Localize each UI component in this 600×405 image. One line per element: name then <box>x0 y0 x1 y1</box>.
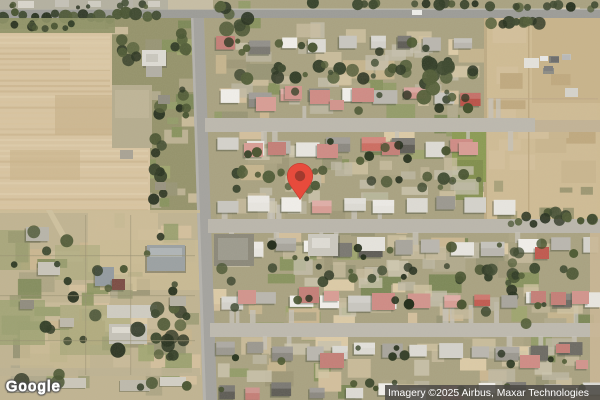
svg-text:Imagery ©2025 Airbus, Maxar Te: Imagery ©2025 Airbus, Maxar Technologies <box>388 388 589 399</box>
svg-text:Google: Google <box>6 379 61 395</box>
